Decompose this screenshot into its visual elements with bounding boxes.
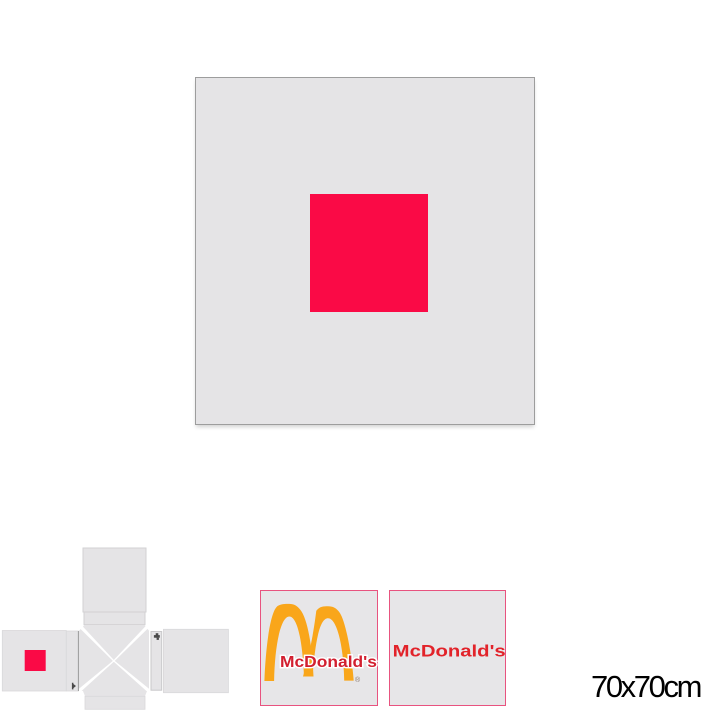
svg-text:McDonald's: McDonald's (393, 641, 505, 660)
svg-text:McDonald's: McDonald's (280, 654, 377, 671)
